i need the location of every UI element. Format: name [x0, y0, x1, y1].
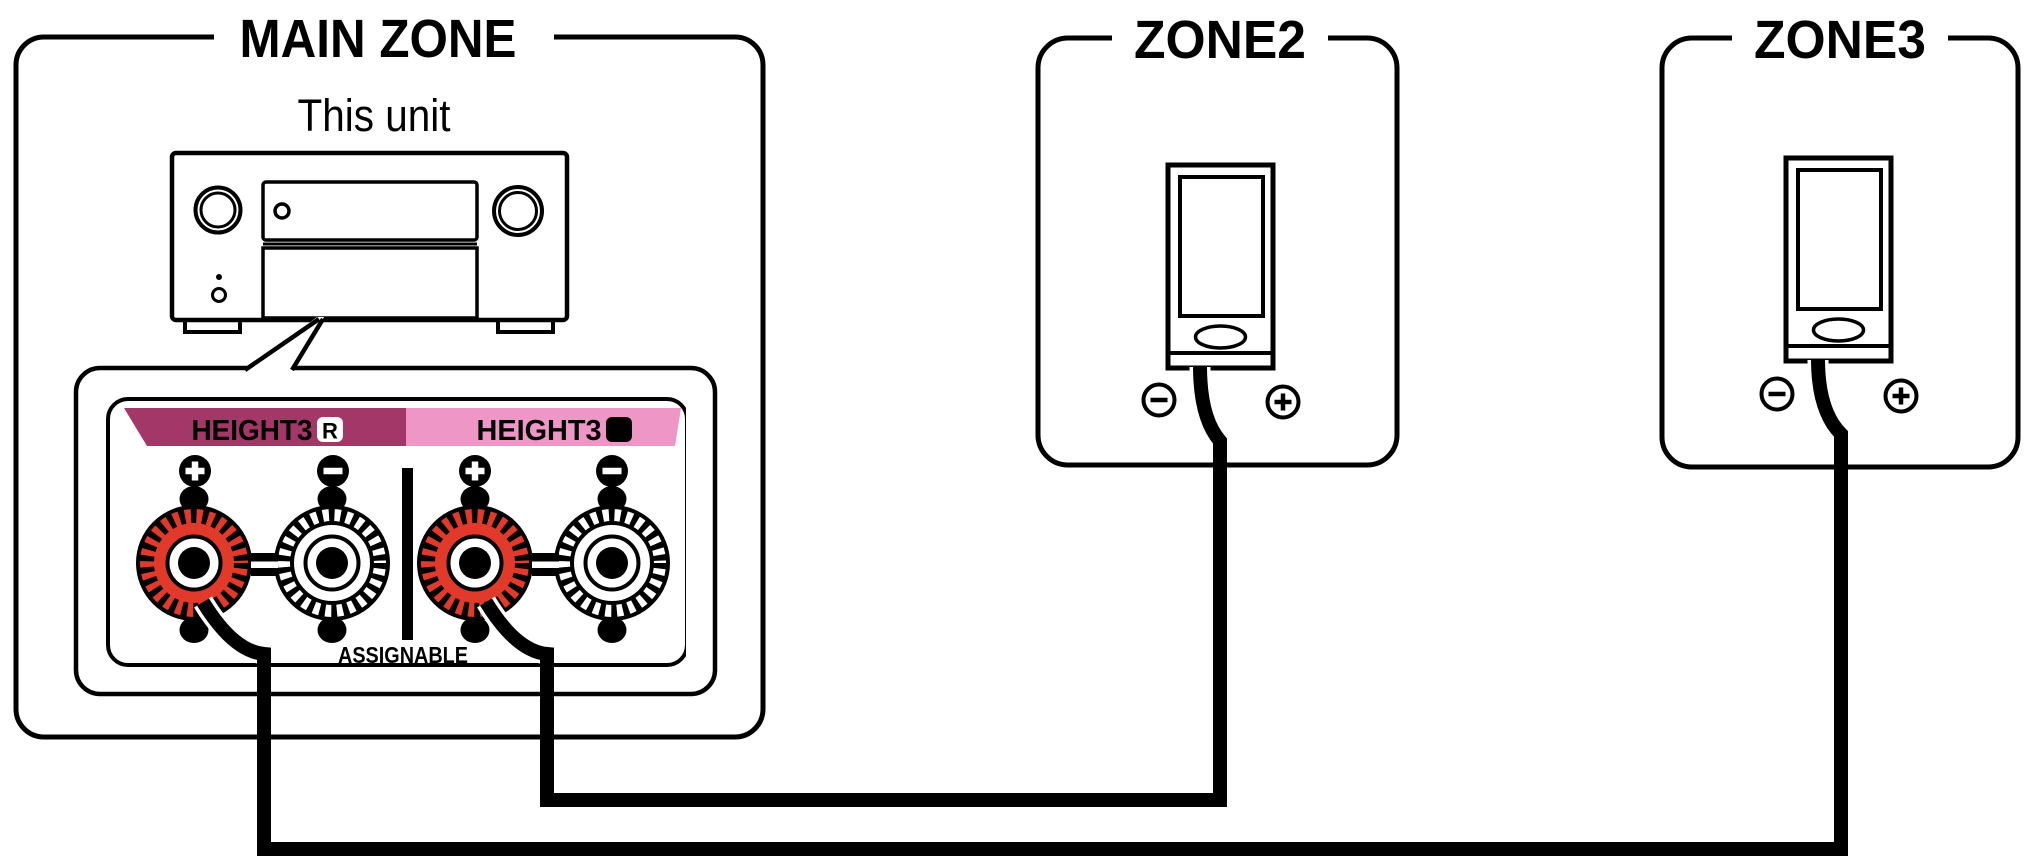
zone2-title: ZONE2 [1134, 10, 1306, 70]
height3-r-band: HEIGHT3 R [124, 408, 406, 447]
zone2-minus-icon [1144, 385, 1175, 416]
height3-r-label: HEIGHT3 [192, 415, 313, 447]
assignable-label: ASSIGNABLE [338, 642, 468, 668]
terminal-panel: HEIGHT3 R HEIGHT3 L [76, 317, 715, 694]
binding-post-l-minus[interactable] [556, 507, 668, 619]
zone3-minus-icon [1762, 379, 1793, 410]
receiver-front-flap [263, 248, 477, 318]
binding-post-r-minus[interactable] [276, 507, 388, 619]
zone2-speaker [1168, 165, 1273, 368]
minus-terminal-icon [596, 455, 628, 487]
receiver-illustration [172, 153, 567, 332]
connection-diagram: MAIN ZONE This unit HEIGHT3 R [0, 0, 2028, 868]
receiver-display [263, 182, 477, 240]
channel-r-letter: R [322, 419, 338, 444]
minus-terminal-icon [317, 455, 349, 487]
diagram-canvas: MAIN ZONE This unit HEIGHT3 R [0, 0, 2028, 868]
zone3-title: ZONE3 [1754, 10, 1926, 70]
plus-terminal-icon [459, 455, 491, 487]
plus-terminal-icon [179, 455, 211, 487]
zone2-plus-icon [1268, 387, 1299, 418]
height3-l-label: HEIGHT3 [477, 415, 602, 447]
height3-l-band: HEIGHT3 L [406, 408, 681, 447]
this-unit-label: This unit [298, 90, 451, 141]
zone3-plus-icon [1886, 381, 1917, 412]
main-zone-title: MAIN ZONE [240, 9, 517, 69]
binding-post-l-plus[interactable] [419, 507, 531, 619]
binding-post-r-plus[interactable] [138, 507, 250, 619]
terminal-divider [402, 468, 413, 640]
zone3-speaker [1786, 158, 1891, 361]
channel-l-letter: L [612, 419, 625, 444]
